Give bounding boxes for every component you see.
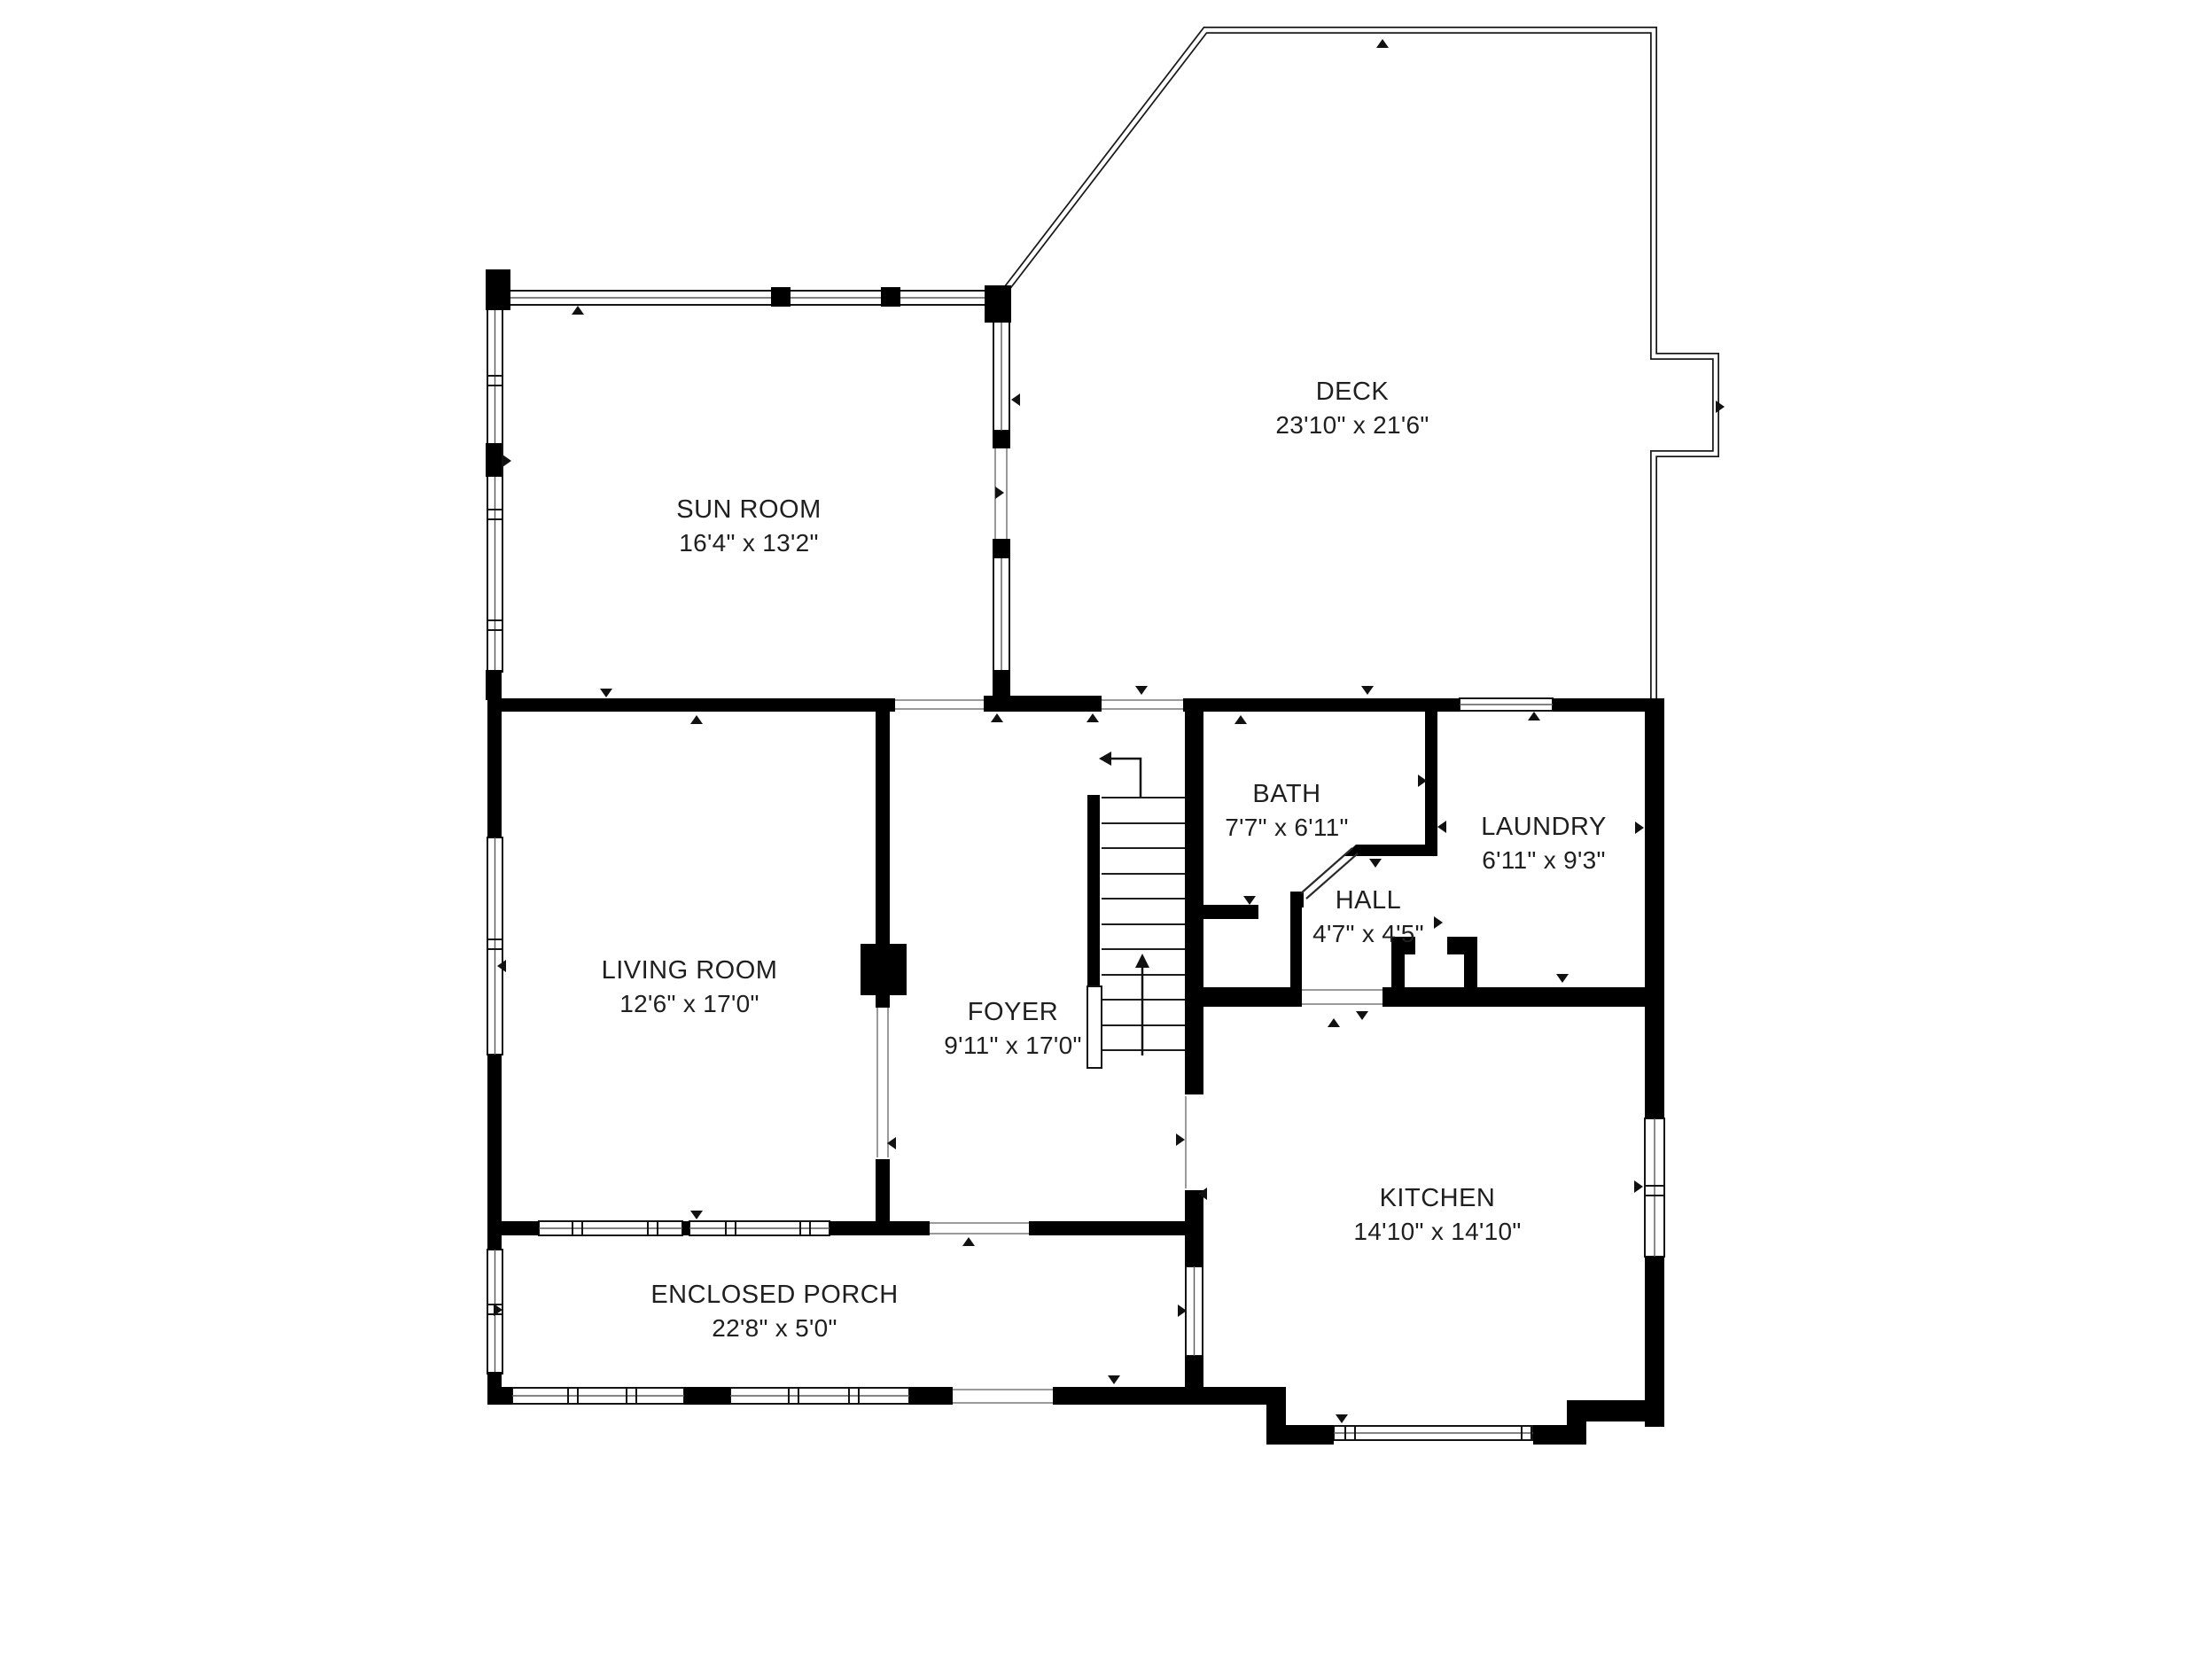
wall xyxy=(1425,712,1437,855)
wall xyxy=(487,698,895,712)
opening-marker xyxy=(1243,896,1256,905)
opening-marker xyxy=(962,1237,975,1246)
wall xyxy=(1645,698,1664,1118)
wall xyxy=(993,539,1010,558)
wall xyxy=(684,1387,730,1405)
opening-marker xyxy=(1361,686,1374,695)
deck-railing-inner xyxy=(1002,30,1716,698)
opening-marker xyxy=(502,455,511,467)
opening-marker xyxy=(1556,974,1569,983)
wall xyxy=(487,1387,512,1405)
stair-lower-rail xyxy=(1087,986,1102,1068)
opening-marker xyxy=(600,689,612,697)
opening-marker xyxy=(1376,39,1389,48)
opening-marker xyxy=(1356,1011,1368,1020)
stair-up-arrow-head xyxy=(1135,954,1149,968)
stair-rail xyxy=(1087,795,1100,986)
opening-marker xyxy=(690,715,703,724)
wall xyxy=(881,287,900,307)
opening-marker xyxy=(995,487,1004,499)
opening-marker xyxy=(991,713,1003,722)
wall xyxy=(1029,1221,1203,1235)
bath-door-leaf xyxy=(1306,853,1358,899)
opening-marker xyxy=(1716,401,1725,413)
opening-marker xyxy=(1135,686,1148,695)
wall xyxy=(993,670,1010,698)
opening-marker xyxy=(1011,393,1020,406)
wall xyxy=(486,670,502,700)
wall xyxy=(829,1221,930,1235)
wall xyxy=(487,1372,502,1389)
floor-plan-drawing xyxy=(0,0,2212,1659)
bath-door-leaf xyxy=(1301,848,1352,893)
opening-marker xyxy=(690,1211,703,1219)
wall xyxy=(1391,937,1415,954)
wall xyxy=(1203,905,1258,919)
wall xyxy=(1382,987,1663,1007)
wall xyxy=(1203,987,1302,1007)
wall xyxy=(1183,698,1460,712)
opening-marker xyxy=(1087,713,1099,722)
wall xyxy=(1586,1400,1664,1421)
wall xyxy=(876,995,890,1008)
wall xyxy=(876,712,890,944)
wall xyxy=(1266,1387,1286,1445)
wall xyxy=(771,287,791,307)
deck-railing xyxy=(1002,30,1716,698)
opening-marker xyxy=(1634,1180,1643,1193)
floor-plan-page: SUN ROOM16'4" x 13'2"DECK23'10" x 21'6"L… xyxy=(0,0,2212,1659)
opening-marker xyxy=(1635,822,1644,834)
opening-marker xyxy=(1434,916,1443,929)
wall xyxy=(1185,1190,1203,1266)
wall xyxy=(1053,1387,1286,1405)
wall xyxy=(1356,845,1437,856)
wall xyxy=(1185,712,1203,1094)
wall xyxy=(487,1221,539,1235)
opening-marker xyxy=(1176,1133,1185,1146)
wall xyxy=(486,443,502,477)
wall xyxy=(876,1159,890,1223)
opening-marker xyxy=(1336,1414,1348,1423)
opening-marker xyxy=(1328,1018,1340,1027)
wall xyxy=(909,1387,953,1405)
wall xyxy=(682,1221,689,1235)
wall xyxy=(1567,1400,1586,1445)
wall xyxy=(1286,1425,1334,1445)
fireplace xyxy=(861,944,907,995)
stair-turn-arrow-head xyxy=(1099,752,1111,766)
opening-marker xyxy=(1108,1375,1120,1384)
wall xyxy=(985,285,1011,323)
opening-marker xyxy=(1369,859,1382,868)
wall xyxy=(487,712,502,837)
wall xyxy=(1447,937,1477,954)
opening-marker xyxy=(572,306,584,315)
wall xyxy=(486,269,510,310)
opening-marker xyxy=(1437,821,1446,833)
opening-marker xyxy=(1235,715,1247,724)
wall xyxy=(993,431,1010,448)
wall xyxy=(487,1055,502,1223)
stair-turn-arrow xyxy=(1110,759,1141,797)
wall xyxy=(487,1234,502,1250)
wall xyxy=(1185,1356,1203,1393)
opening-marker xyxy=(1528,712,1540,720)
